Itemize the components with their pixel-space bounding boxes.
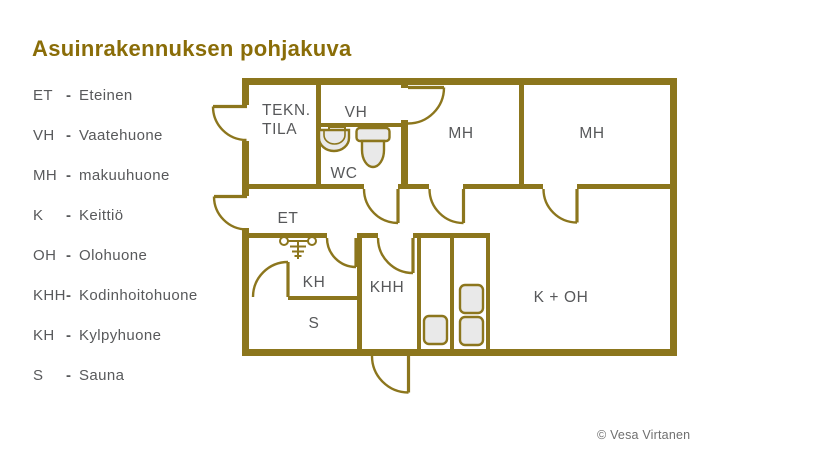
- room-label-mh1: MH: [448, 125, 473, 142]
- door-arc: [253, 262, 288, 297]
- door-entrance-exterior: [214, 197, 247, 230]
- copyright: © Vesa Virtanen: [597, 428, 690, 442]
- door-arc: [408, 88, 444, 124]
- door-arc: [378, 238, 413, 273]
- door-kh: [327, 238, 356, 267]
- room-label-mh2: MH: [579, 125, 604, 142]
- wall-bottom: [242, 349, 677, 356]
- floor-plan: TEKN. TILA VH WC MH MH ET KH KHH S K + O…: [0, 0, 825, 452]
- wall-hall-top: [242, 184, 364, 189]
- door-arc: [372, 356, 409, 393]
- wall-closet: [450, 238, 454, 349]
- wall-mh-mh: [519, 85, 524, 184]
- wall-closet: [486, 238, 490, 349]
- door-arc: [213, 107, 247, 141]
- wall-wc-mh: [401, 120, 408, 184]
- wall-hall-bottom: [357, 233, 378, 238]
- wall-wc-mh: [401, 85, 408, 88]
- door-tekn-exterior: [213, 107, 247, 141]
- wall-top: [242, 78, 677, 85]
- wall-hall-top: [463, 184, 543, 189]
- door-arc: [544, 189, 578, 223]
- room-label-khh: KHH: [370, 279, 405, 296]
- door-wc: [364, 189, 398, 223]
- floor-plan-page: Asuinrakennuksen pohjakuva ET - Eteinen …: [0, 0, 825, 452]
- appliance-icon: [424, 316, 447, 344]
- room-label-tekn-tila: TILA: [262, 121, 297, 138]
- shower-mixer-icon: [280, 237, 316, 259]
- door-arc: [214, 197, 247, 230]
- wall-hall-top: [398, 184, 429, 189]
- sink-icon: [319, 127, 349, 151]
- room-label-wc: WC: [330, 165, 357, 182]
- wall-right: [670, 78, 677, 356]
- door-khh: [378, 238, 413, 273]
- door-vh: [408, 88, 444, 124]
- wall-left: [242, 228, 249, 356]
- appliance-icon: [460, 317, 483, 345]
- wall-kh-s: [288, 296, 357, 300]
- room-label-vh: VH: [345, 104, 368, 121]
- wall-hall-bottom: [413, 233, 490, 238]
- wall-closet: [417, 238, 421, 349]
- room-label-et: ET: [277, 210, 298, 227]
- appliance-icon: [460, 285, 483, 313]
- door-arc: [364, 189, 398, 223]
- door-sauna: [253, 262, 288, 297]
- walls: [242, 78, 677, 356]
- wall-kh-khh: [357, 238, 362, 349]
- door-arc: [327, 238, 356, 267]
- room-label-kh: KH: [303, 274, 326, 291]
- room-label-s: S: [309, 315, 320, 332]
- room-label-k-oh: K + OH: [534, 289, 589, 306]
- toilet-icon: [357, 128, 390, 167]
- door-arc: [430, 189, 464, 223]
- door-mh2: [544, 189, 578, 223]
- room-label-tekn-tila: TEKN.: [262, 102, 311, 119]
- wall-hall-top: [577, 184, 677, 189]
- wall-left: [242, 78, 249, 105]
- door-khh-exterior: [372, 356, 409, 393]
- door-mh1: [430, 189, 464, 223]
